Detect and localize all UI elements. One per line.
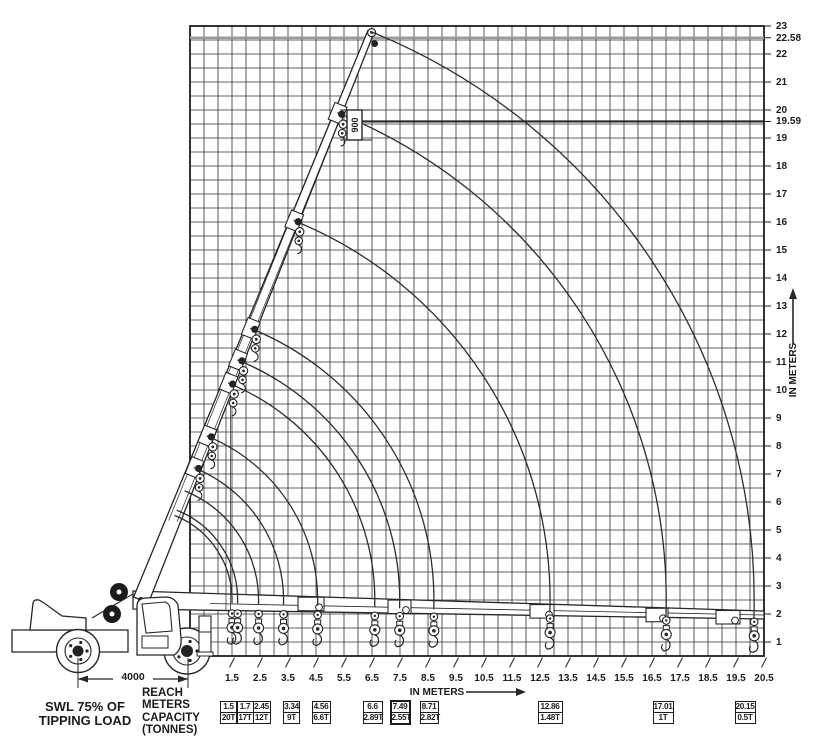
capacity-value: 20T [221, 712, 236, 723]
capacity-box: 2.4512T [253, 701, 271, 724]
x-tick-label: 4.5 [301, 673, 331, 684]
x-tick-label: 10.5 [469, 673, 499, 684]
x-tick-label: 12.5 [525, 673, 555, 684]
capacity-value: 9T [284, 712, 299, 723]
capacity-box: 3.349T [283, 701, 300, 724]
legend-row-meters: METERS [142, 699, 200, 711]
reach-value: 3.34 [284, 702, 299, 712]
x-tick-label: 18.5 [693, 673, 723, 684]
capacity-box: 6.62.89T [363, 701, 383, 724]
x-tick-label: 19.5 [721, 673, 751, 684]
reference-height-lines [190, 38, 764, 122]
reach-value: 20.15 [736, 702, 755, 712]
y-tick-label: 6 [776, 497, 782, 508]
capacity-value: 12T [254, 712, 270, 723]
y-tick-label: 22.58 [776, 33, 801, 44]
y-tick-label: 2 [776, 609, 782, 620]
capacity-value: 2.89T [364, 712, 382, 723]
y-tick-label: 3 [776, 581, 782, 592]
swl-note: SWL 75% OF TIPPING LOAD [38, 700, 132, 728]
reach-value: 8.71 [421, 702, 438, 712]
reach-value: 6.6 [364, 702, 382, 712]
capacity-box: 20.150.5T [735, 701, 756, 724]
y-tick-label: 4 [776, 553, 782, 564]
x-tick-label: 8.5 [413, 673, 443, 684]
capacity-box: 4.566.6T [312, 701, 331, 724]
capacity-box: 1.520T [220, 701, 237, 724]
y-tick-label: 15 [776, 245, 787, 256]
capacity-box: 17.011T [653, 701, 674, 724]
capacity-box: 1.717T [237, 701, 254, 724]
legend-row-tonnes: (TONNES) [142, 724, 200, 736]
x-tick-label: 3.5 [273, 673, 303, 684]
y-tick-label: 18 [776, 161, 787, 172]
chart-canvas [0, 0, 831, 755]
x-tick-label: 20.5 [749, 673, 779, 684]
y-tick-label: 1 [776, 637, 782, 648]
y-tick-label: 20 [776, 105, 787, 116]
x-tick-label: 15.5 [609, 673, 639, 684]
reach-value: 4.56 [313, 702, 330, 712]
x-axis-label: IN METERS [407, 687, 467, 698]
reach-value: 12.86 [539, 702, 562, 712]
y-tick-label: 11 [776, 357, 787, 368]
swl-note-line2: TIPPING LOAD [38, 714, 132, 728]
capacity-legend: REACH METERS CAPACITY (TONNES) [142, 687, 200, 736]
legend-row-capacity: CAPACITY [142, 712, 200, 724]
y-tick-label: 16 [776, 217, 787, 228]
reach-value: 7.49 [392, 702, 409, 712]
y-tick-label: 23 [776, 21, 787, 32]
capacity-box: 7.492.55T [390, 700, 411, 725]
reach-value: 2.45 [254, 702, 270, 712]
y-tick-label: 5 [776, 525, 782, 536]
x-tick-label: 2.5 [245, 673, 275, 684]
swl-note-line1: SWL 75% OF [38, 700, 132, 714]
y-tick-label: 19 [776, 133, 787, 144]
reach-value: 17.01 [654, 702, 673, 712]
reach-value: 1.5 [221, 702, 236, 712]
x-tick-label: 11.5 [497, 673, 527, 684]
y-tick-label: 12 [776, 329, 787, 340]
y-tick-label: 9 [776, 413, 782, 424]
y-tick-label: 10 [776, 385, 787, 396]
x-tick-label: 9.5 [441, 673, 471, 684]
capacity-value: 6.6T [313, 712, 330, 723]
capacity-value: 1T [654, 712, 673, 723]
y-tick-label: 7 [776, 469, 782, 480]
head-offset-dimension-label: 900 [350, 110, 360, 140]
y-tick-label: 17 [776, 189, 787, 200]
capacity-value: 17T [238, 712, 253, 723]
x-tick-label: 16.5 [637, 673, 667, 684]
reach-value: 1.7 [238, 702, 253, 712]
y-tick-label: 21 [776, 77, 787, 88]
crane-load-chart-figure: SWL 75% OF TIPPING LOAD REACH METERS CAP… [0, 0, 831, 755]
wheelbase-dimension-label: 4000 [116, 671, 150, 683]
y-tick-label: 22 [776, 49, 787, 60]
capacity-box: 12.861.48T [538, 701, 563, 724]
capacity-value: 1.48T [539, 712, 562, 723]
legend-row-reach: REACH [142, 687, 200, 699]
x-tick-label: 7.5 [385, 673, 415, 684]
y-tick-label: 8 [776, 441, 782, 452]
axis-arrows [466, 288, 797, 696]
x-tick-label: 6.5 [357, 673, 387, 684]
x-tick-label: 17.5 [665, 673, 695, 684]
y-tick-label: 13 [776, 301, 787, 312]
capacity-value: 2.55T [392, 712, 409, 723]
capacity-box: 8.712.82T [420, 701, 439, 724]
y-axis-label: IN METERS [788, 339, 800, 401]
y-tick-label: 14 [776, 273, 787, 284]
capacity-value: 0.5T [736, 712, 755, 723]
x-tick-label: 1.5 [217, 673, 247, 684]
y-tick-label: 19.59 [776, 116, 801, 127]
x-tick-label: 14.5 [581, 673, 611, 684]
x-tick-label: 13.5 [553, 673, 583, 684]
x-tick-label: 5.5 [329, 673, 359, 684]
capacity-value: 2.82T [421, 712, 438, 723]
